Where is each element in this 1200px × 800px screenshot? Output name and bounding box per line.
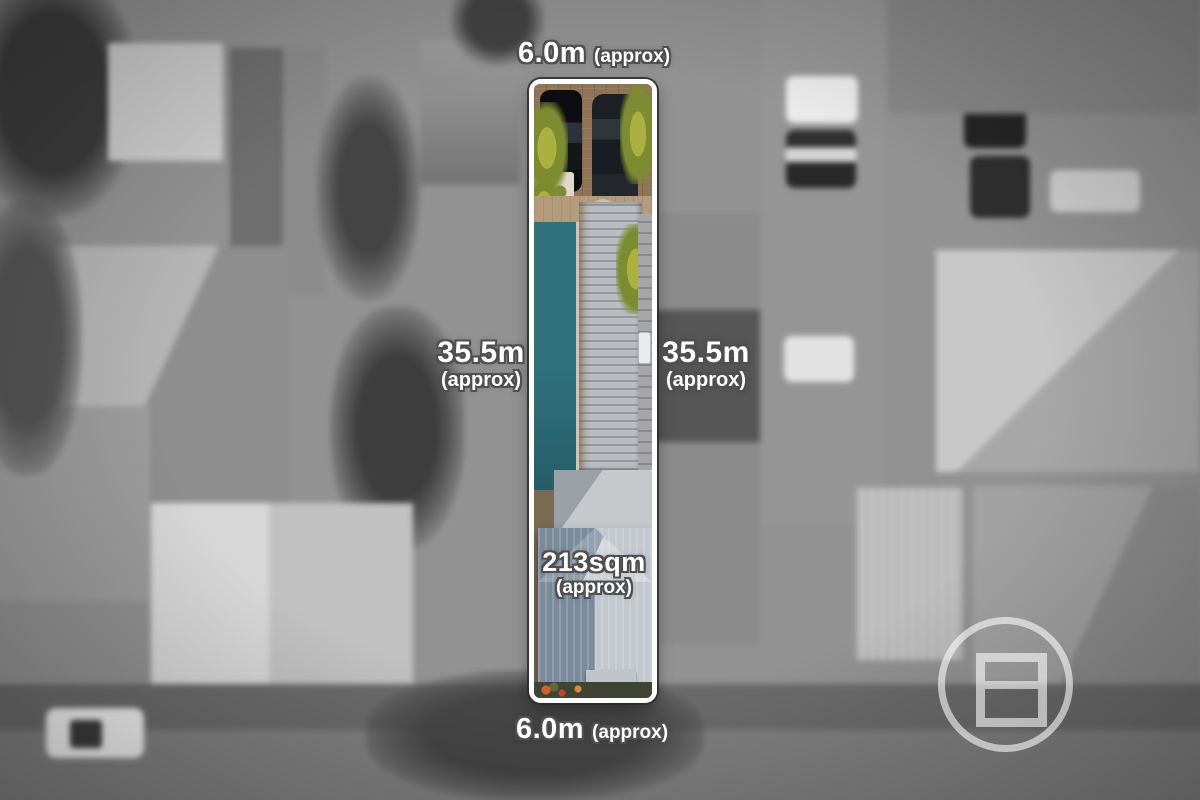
parked-car: [786, 130, 856, 188]
dimension-value: 6.0m: [516, 713, 584, 745]
palm-plant: [620, 84, 652, 184]
swimming-pool: [534, 222, 579, 490]
dimension-qualifier: (approx): [662, 370, 750, 391]
dimension-label-right: 35.5m (approx): [662, 337, 750, 391]
dimension-value: 35.5m: [437, 337, 525, 369]
dimension-label-top: 6.0m(approx): [518, 38, 670, 68]
parked-car: [784, 336, 854, 382]
dimension-qualifier: (approx): [437, 370, 525, 391]
dimension-value: 6.0m: [518, 37, 586, 69]
dimension-label-bottom: 6.0m(approx): [516, 714, 668, 744]
dimension-qualifier: (approx): [594, 46, 670, 67]
parked-car: [1050, 170, 1140, 212]
area-qualifier: (approx): [542, 578, 646, 598]
property-aerial-view: [534, 84, 652, 698]
parked-car: [970, 156, 1030, 218]
parked-car: [786, 76, 858, 123]
house-roof: [936, 250, 1200, 472]
dimension-value: 35.5m: [662, 337, 750, 369]
property-boundary: [529, 79, 657, 703]
car-windscreen: [70, 720, 102, 748]
house-roof: [108, 43, 223, 161]
dimension-label-left: 35.5m (approx): [437, 337, 525, 391]
agency-logo-watermark: [938, 617, 1073, 752]
tree-canopy: [316, 76, 421, 301]
ac-unit: [638, 332, 651, 364]
area-value: 213sqm: [542, 548, 646, 576]
stacked-squares-icon: [976, 653, 1047, 727]
house-roof: [888, 0, 1200, 114]
area-label: 213sqm (approx): [542, 548, 646, 598]
aerial-property-photo: 6.0m(approx) 35.5m (approx) 35.5m (appro…: [0, 0, 1200, 800]
mid-section-roof: [554, 470, 652, 528]
front-garden: [534, 682, 652, 698]
dimension-qualifier: (approx): [592, 722, 668, 743]
logo-middle-bar: [985, 681, 1038, 689]
